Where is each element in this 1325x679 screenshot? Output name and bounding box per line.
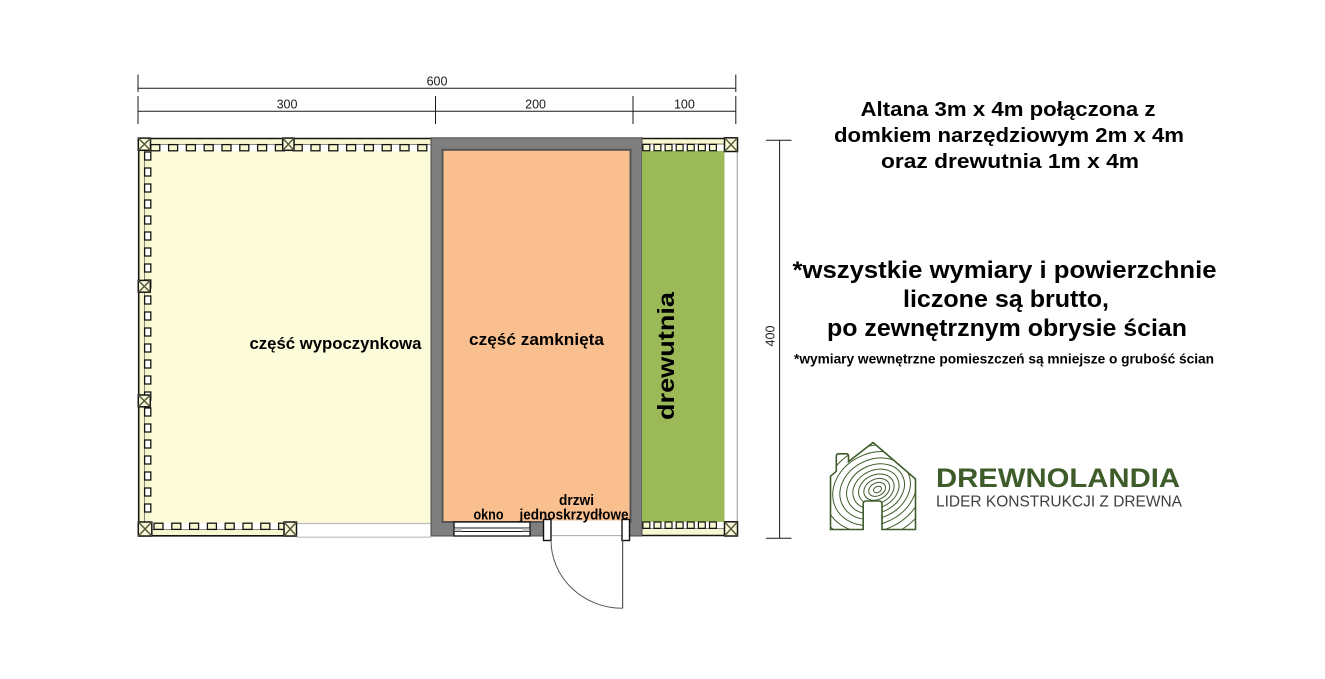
svg-text:DREWNOLANDIA: DREWNOLANDIA	[936, 463, 1180, 493]
svg-text:600: 600	[427, 75, 448, 89]
svg-text:jednoskrzydłowe: jednoskrzydłowe	[519, 507, 629, 524]
svg-text:100: 100	[674, 98, 695, 112]
svg-text:LIDER KONSTRUKCJI Z DREWNA: LIDER KONSTRUKCJI Z DREWNA	[936, 494, 1182, 511]
svg-text:200: 200	[525, 98, 546, 112]
svg-text:*wymiary wewnętrzne pomieszcze: *wymiary wewnętrzne pomieszczeń są mniej…	[794, 351, 1214, 367]
svg-text:liczone są brutto,: liczone są brutto,	[903, 286, 1109, 313]
svg-text:drewutnia: drewutnia	[653, 292, 679, 420]
svg-text:część wypoczynkowa: część wypoczynkowa	[250, 334, 423, 353]
svg-text:okno: okno	[474, 507, 504, 524]
svg-text:400: 400	[764, 326, 778, 347]
svg-text:część zamknięta: część zamknięta	[469, 330, 605, 349]
svg-text:300: 300	[277, 98, 298, 112]
svg-text:*wszystkie wymiary i powierzch: *wszystkie wymiary i powierzchnie	[793, 257, 1217, 284]
svg-text:Altana 3m x 4m połączona z: Altana 3m x 4m połączona z	[861, 99, 1156, 121]
svg-text:po zewnętrznym obrysie ścian: po zewnętrznym obrysie ścian	[827, 315, 1187, 342]
svg-text:domkiem narzędziowym 2m x 4m: domkiem narzędziowym 2m x 4m	[834, 125, 1184, 147]
svg-text:oraz drewutnia 1m x 4m: oraz drewutnia 1m x 4m	[881, 151, 1139, 173]
